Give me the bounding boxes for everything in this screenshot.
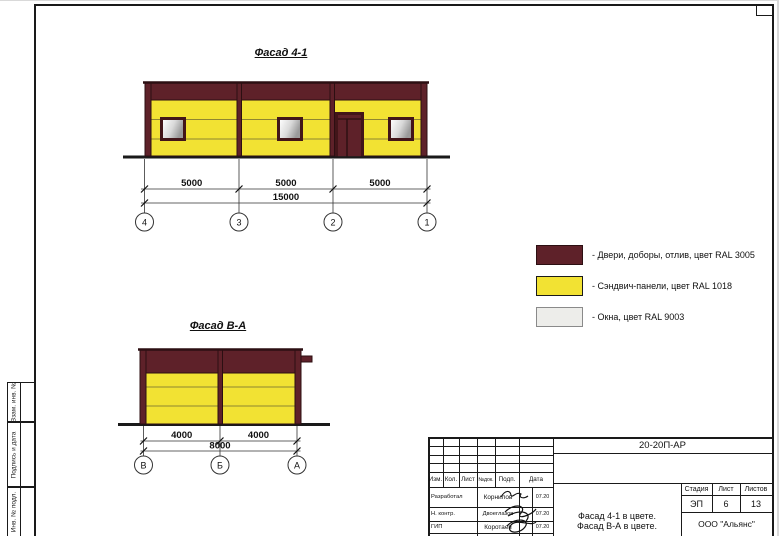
pilaster-left	[145, 83, 151, 156]
window-glass	[280, 120, 300, 138]
titleblock-line	[428, 463, 553, 464]
stage-value: ЭП	[681, 495, 712, 512]
col-header-izm: Изм.	[428, 472, 443, 487]
page-edge-top	[0, 0, 779, 1]
door-leafs	[338, 115, 361, 157]
frame-top-line	[34, 4, 774, 6]
sheet-value: 6	[712, 495, 740, 512]
sidebar-cell-inv: Инв. № подл.	[7, 487, 35, 536]
axis-label-3: 3	[236, 218, 241, 228]
sidebar-label-podpis: Подпись и дата	[11, 431, 18, 478]
frame-right-line	[772, 4, 774, 536]
subject-line-2: Фасад В-А в цвете.	[553, 522, 681, 532]
signatures	[495, 486, 550, 536]
pilaster-right	[295, 350, 301, 424]
axis-label-b: Б	[217, 461, 223, 471]
sidebar-cell-divider	[20, 488, 21, 536]
row-role-developer: Разработал	[429, 487, 477, 507]
col-header-ndok: №док.	[477, 472, 495, 487]
pilaster-left	[140, 350, 146, 424]
legend-label-panels: - Сэндвич-панели, цвет RAL 1018	[592, 276, 732, 296]
titleblock-line	[428, 455, 553, 456]
sidebar-cell-divider	[20, 423, 21, 486]
dim-label: 5000	[275, 178, 296, 189]
axis-label-a: А	[294, 461, 300, 471]
mullion-axis3	[237, 83, 242, 156]
axis-label-2: 2	[330, 218, 335, 228]
titleblock-line	[553, 453, 772, 454]
pilaster-right	[421, 83, 427, 156]
window-glass	[163, 120, 183, 138]
company-name: ООО "Альянс"	[681, 512, 772, 536]
stage-header: Стадия	[681, 483, 712, 495]
facade-top-drawing: 5000 5000 5000 15000 4 3 2 1	[85, 40, 465, 236]
row-role-gip: ГИП	[429, 521, 477, 533]
sheet-header: Лист	[712, 483, 740, 495]
signature-gip	[507, 520, 536, 532]
dim-label: 5000	[181, 178, 202, 189]
sidebar-cell-divider	[20, 383, 21, 421]
sidebar-cell-vzam: Взам. инв. №	[7, 382, 35, 422]
dim-label: 4000	[171, 430, 192, 441]
mullion-axis-b	[218, 350, 223, 424]
sheets-value: 13	[740, 495, 772, 512]
facade-side-drawing: 4000 4000 8000 В Б А	[95, 315, 355, 485]
legend-swatch-panels	[536, 276, 583, 296]
legend-swatch-windows	[536, 307, 583, 327]
sidebar-cell-podpis: Подпись и дата	[7, 422, 35, 487]
axis-bubbles	[136, 213, 437, 231]
frame-corner-box	[756, 4, 773, 16]
sheet-subject: Фасад 4-1 в цвете. Фасад В-А в цвете.	[553, 512, 681, 531]
legend-label-windows: - Окна, цвет RAL 9003	[592, 307, 684, 327]
signature-ncontr	[505, 506, 536, 521]
axis-label-1: 1	[424, 218, 429, 228]
sheets-header: Листов	[740, 483, 772, 495]
doc-code: 20-20П-АР	[553, 437, 772, 453]
axis-label-4: 4	[142, 218, 147, 228]
mullion-axis2	[330, 83, 335, 156]
legend-item-windows: - Окна, цвет RAL 9003	[536, 307, 684, 327]
gutter-outlet	[301, 356, 312, 362]
window-glass	[391, 120, 411, 138]
col-header-podp: Подп.	[495, 472, 519, 487]
dim-total-label: 15000	[273, 192, 299, 203]
legend-item-doors: - Двери, доборы, отлив, цвет RAL 3005	[536, 245, 755, 265]
legend-item-panels: - Сэндвич-панели, цвет RAL 1018	[536, 276, 732, 296]
legend-label-doors: - Двери, доборы, отлив, цвет RAL 3005	[592, 245, 755, 265]
col-header-list: Лист	[459, 472, 477, 487]
sidebar-label-inv: Инв. № подл.	[11, 492, 18, 533]
parapet-band	[145, 83, 427, 100]
axis-label-v: В	[140, 461, 146, 471]
dim-total-label: 8000	[209, 441, 230, 452]
col-header-data: Дата	[519, 472, 553, 487]
signature-developer	[501, 491, 528, 497]
sidebar-label-vzam: Взам. инв. №	[11, 382, 18, 422]
building-body	[138, 350, 312, 425]
drawing-sheet: Взам. инв. № Подпись и дата Инв. № подл.…	[0, 0, 779, 536]
dim-label: 5000	[369, 178, 390, 189]
titleblock-line	[428, 446, 553, 447]
dim-label: 4000	[248, 430, 269, 441]
row-role-ncontr: Н. контр.	[429, 507, 477, 521]
col-header-kol: Кол.	[443, 472, 459, 487]
legend-swatch-doors	[536, 245, 583, 265]
